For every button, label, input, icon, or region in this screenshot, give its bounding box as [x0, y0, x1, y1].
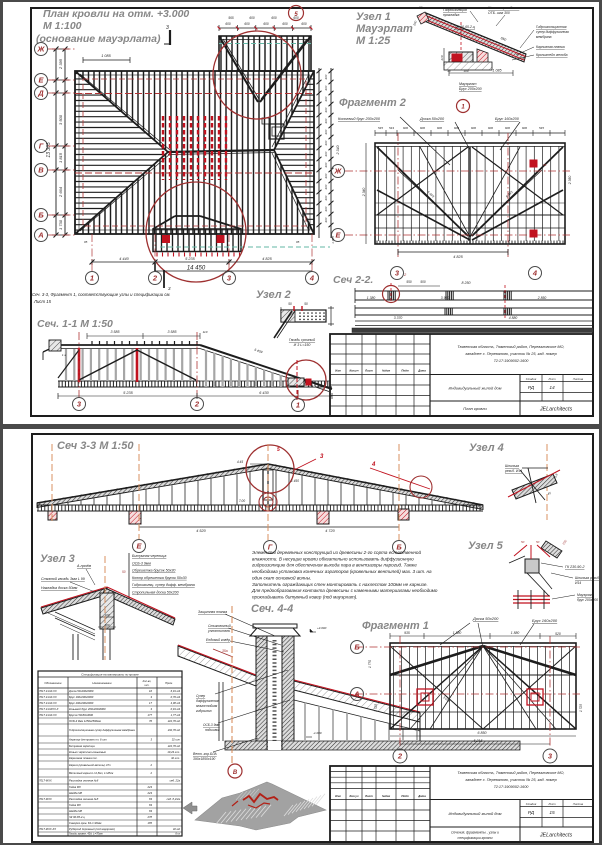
svg-text:Лист: Лист: [547, 377, 556, 381]
svg-text:Карниз (кровельной ветиль) х7т: Карниз (кровельной ветиль) х7т: [69, 763, 112, 767]
svg-text:1 450: 1 450: [291, 479, 299, 483]
svg-text:Шпилька резьбовая: Шпилька резьбовая: [488, 6, 519, 10]
svg-text:2: 2: [403, 272, 407, 277]
svg-text:западнее с. Перевалово, участо: западнее с. Перевалово, участок № 25, ка…: [464, 778, 557, 782]
svg-text:3: 3: [151, 738, 153, 742]
svg-text:35а: 35а: [222, 649, 228, 653]
svg-text:600: 600: [263, 22, 269, 26]
svg-text:Узел 3: Узел 3: [40, 553, 75, 565]
svg-text:45: 45: [547, 491, 552, 496]
svg-text:50: 50: [536, 540, 540, 544]
svg-text:20: 20: [446, 69, 451, 73]
svg-text:1 770: 1 770: [368, 660, 372, 668]
svg-text:Для предообразования контакта: Для предообразования контакта древесины …: [251, 588, 438, 593]
svg-text:14: 14: [549, 385, 555, 391]
svg-text:Кол-во,: Кол-во,: [143, 679, 152, 683]
svg-text:3 370: 3 370: [394, 316, 403, 320]
svg-text:Гвоздь срочный: Гвоздь срочный: [289, 338, 315, 342]
svg-text:Карнизная планка пог.: Карнизная планка пог.: [69, 756, 98, 760]
svg-text:600: 600: [324, 151, 328, 156]
svg-text:3: 3: [166, 25, 169, 31]
svg-text:1: 1: [461, 105, 465, 111]
svg-text:+4.000: +4.000: [317, 626, 327, 630]
svg-text:Шпилька: Шпилька: [505, 464, 519, 468]
svg-text:5 235: 5 235: [123, 391, 133, 395]
svg-text:7.00: 7.00: [239, 499, 245, 503]
svg-text:200: 200: [561, 539, 568, 546]
svg-text:1: 1: [296, 401, 300, 410]
svg-text:Шайба М8: Шайба М8: [69, 791, 82, 795]
svg-text:3: 3: [395, 269, 400, 278]
svg-text:ОСБ-3 9мм 1250х2500мм: ОСБ-3 9мм 1250х2500мм: [69, 719, 101, 723]
svg-text:Мауэрлат: Мауэрлат: [577, 593, 594, 597]
svg-text:4 520: 4 520: [196, 529, 206, 533]
svg-text:прокладка: прокладка: [443, 13, 460, 17]
svg-text:подшивка: подшивка: [205, 728, 220, 732]
svg-text:50: 50: [288, 302, 292, 306]
svg-text:210: 210: [440, 55, 444, 61]
svg-text:15: 15: [549, 810, 555, 816]
svg-text:Изм: Изм: [335, 794, 341, 798]
svg-text:2: 2: [194, 400, 200, 409]
svg-text:6 кг: 6 кг: [175, 832, 180, 836]
svg-text:600: 600: [324, 140, 328, 145]
svg-text:Тюменская область, Тюменский р: Тюменская область, Тюменский район, Пере…: [457, 345, 564, 349]
svg-text:себ. 22а: себ. 22а: [170, 779, 181, 783]
svg-text:Гидроизоляц. супер дифф. мембр: Гидроизоляц. супер дифф. мембрана: [132, 583, 195, 587]
svg-text:План кровли: План кровли: [463, 406, 487, 411]
svg-text:Доска 50х200: Доска 50х200: [419, 117, 445, 121]
svg-text:Сеч. 1-1 М 1:50: Сеч. 1-1 М 1:50: [37, 318, 113, 330]
svg-text:185: 185: [148, 821, 153, 825]
svg-text:95: 95: [84, 240, 88, 244]
svg-text:7017.3-КЖ-ХХ: 7017.3-КЖ-ХХ: [39, 701, 57, 705]
svg-text:3: 3: [77, 400, 82, 409]
svg-text:Гидроизоляционная: Гидроизоляционная: [536, 25, 567, 29]
svg-text:Брусок 50х50х3000: Брусок 50х50х3000: [69, 713, 94, 717]
svg-text:72:17:1909002:1600: 72:17:1909002:1600: [494, 785, 530, 789]
svg-text:50: 50: [279, 307, 283, 311]
svg-text:3 585: 3 585: [111, 330, 120, 334]
svg-text:3: 3: [151, 695, 153, 699]
svg-text:3: 3: [151, 707, 153, 711]
svg-text:4.45: 4.45: [237, 460, 243, 464]
svg-text:Битумная черепица: Битумная черепица: [69, 744, 95, 748]
svg-text:Фрагмент 1: Фрагмент 1: [362, 620, 429, 632]
svg-text:7017-ФХХ-ХХ: 7017-ФХХ-ХХ: [39, 827, 56, 831]
svg-text:Доска 50х200: Доска 50х200: [472, 616, 499, 621]
svg-text:1 815: 1 815: [58, 152, 63, 163]
svg-text:Дата: Дата: [417, 794, 426, 798]
svg-text:Изм: Изм: [335, 369, 341, 373]
svg-text:Индивидуальный жилой дом: Индивидуальный жилой дом: [449, 385, 502, 390]
svg-text:Узел 4: Узел 4: [469, 442, 504, 454]
svg-text:ЧК 90-65-2-ц: ЧК 90-65-2-ц: [455, 25, 475, 29]
svg-text:Накладка доска 50мм: Накладка доска 50мм: [41, 586, 78, 590]
svg-text:Ж: Ж: [37, 45, 46, 54]
svg-text:7017-МХХ: 7017-МХХ: [39, 779, 52, 783]
svg-text:Е: Е: [136, 542, 142, 551]
svg-text:1: 1: [90, 274, 94, 283]
svg-text:гидроизоляцию для обеспечения: гидроизоляцию для обеспечения выхода пар…: [252, 563, 417, 568]
svg-text:РД: РД: [528, 385, 535, 391]
svg-text:600: 600: [324, 118, 328, 123]
svg-text:Коньевой брус 200х200х6000: Коньевой брус 200х200х6000: [69, 707, 106, 711]
svg-text:935: 935: [404, 631, 410, 635]
svg-text:600: 600: [420, 126, 425, 130]
svg-text:650: 650: [500, 36, 507, 42]
svg-text:500: 500: [420, 280, 426, 284]
svg-text:600: 600: [324, 74, 328, 79]
svg-text:Брус 160х200х6000: Брус 160х200х6000: [69, 695, 94, 699]
svg-text:600: 600: [225, 22, 231, 26]
svg-text:50: 50: [304, 302, 308, 306]
svg-text:Гвоздь кровел. 43д. L=70мм: Гвоздь кровел. 43д. L=70мм: [69, 832, 103, 836]
svg-text:Кол.уч: Кол.уч: [349, 369, 358, 373]
svg-text:100: 100: [463, 69, 468, 73]
svg-text:7017.3-КЖ-ХХ: 7017.3-КЖ-ХХ: [39, 689, 57, 693]
svg-text:А: А: [353, 690, 359, 699]
svg-text:ОТБ. шаг 300: ОТБ. шаг 300: [488, 11, 510, 15]
svg-text:М 1:25: М 1:25: [356, 35, 391, 47]
svg-text:План кровли на отм. +3.000: План кровли на отм. +3.000: [43, 8, 189, 20]
svg-text:177: 177: [148, 713, 153, 717]
svg-text:10,23 шт.: 10,23 шт.: [167, 750, 180, 754]
svg-text:7017-МХХ: 7017-МХХ: [39, 797, 52, 801]
svg-text:Брус 200х200х6000: Брус 200х200х6000: [69, 701, 94, 705]
svg-text:Подп: Подп: [401, 369, 408, 373]
svg-text:600: 600: [488, 126, 493, 130]
svg-text:4,08 м3: 4,08 м3: [171, 701, 181, 705]
svg-text:6 430: 6 430: [259, 391, 269, 395]
svg-text:550: 550: [406, 280, 412, 284]
svg-text:диффузионная: диффузионная: [196, 699, 219, 703]
svg-text:ОСБ-3 9мм: ОСБ-3 9мм: [132, 561, 151, 565]
svg-text:ЧК 90-65-2-ц: ЧК 90-65-2-ц: [69, 815, 85, 819]
svg-text:Мауэрлат: Мауэрлат: [459, 82, 476, 86]
svg-text:Лист: Лист: [547, 802, 556, 806]
svg-text:4 720: 4 720: [325, 529, 335, 533]
svg-text:565: 565: [228, 16, 234, 20]
svg-text:5 235: 5 235: [185, 257, 195, 261]
svg-text:Стадия: Стадия: [526, 802, 537, 806]
svg-text:Тюменская область, Тюменский р: Тюменская область, Тюменский район, Пере…: [457, 771, 564, 775]
svg-text:14 450: 14 450: [187, 266, 206, 272]
svg-text:Листов: Листов: [572, 802, 584, 806]
svg-text:Спецификация на материалы по к: Спецификация на материалы по кровле: [81, 673, 139, 677]
svg-text:223: 223: [147, 791, 153, 795]
svg-text:РД: РД: [528, 810, 535, 816]
svg-text:4 825: 4 825: [262, 257, 272, 261]
svg-text:ГК 230-90-2: ГК 230-90-2: [565, 565, 584, 569]
svg-text:600: 600: [522, 126, 527, 130]
svg-text:32 м2: 32 м2: [173, 827, 181, 831]
svg-text:М 1:100: М 1:100: [43, 20, 82, 32]
svg-text:4: 4: [371, 462, 376, 468]
svg-text:2 340: 2 340: [362, 188, 366, 198]
svg-text:3: 3: [320, 454, 324, 460]
svg-text:1 725: 1 725: [374, 704, 378, 712]
svg-text:5 215: 5 215: [474, 739, 483, 743]
svg-text:16: 16: [149, 689, 152, 693]
svg-text:Сеч. 3-3, Фрагмент 1, соответс: Сеч. 3-3, Фрагмент 1, соответствующие уз…: [32, 292, 171, 297]
svg-text:3: 3: [548, 752, 553, 761]
svg-text:Б: Б: [354, 643, 360, 652]
svg-text:600: 600: [271, 16, 277, 20]
svg-text:1 730: 1 730: [58, 219, 63, 230]
svg-text:32 шт: 32 шт: [172, 738, 181, 742]
svg-text:Стропильная доска 50х200: Стропильная доска 50х200: [132, 591, 179, 595]
svg-text:Подп: Подп: [401, 794, 408, 798]
svg-text:5 459: 5 459: [254, 348, 263, 354]
svg-text:7017.3-КЖ-ХХ: 7017.3-КЖ-ХХ: [39, 713, 57, 717]
svg-text:Кол.уч: Кол.уч: [349, 794, 358, 798]
svg-text:600: 600: [324, 206, 328, 211]
svg-text:232,76 м2: 232,76 м2: [167, 728, 181, 732]
svg-text:600: 600: [505, 126, 510, 130]
svg-text:Раскладка оконная №8: Раскладка оконная №8: [69, 779, 99, 783]
svg-text:прокладывать битумный ковер (п: прокладывать битумный ковер (под мауэрла…: [252, 593, 358, 599]
svg-text:600: 600: [324, 85, 328, 90]
svg-text:2: 2: [397, 752, 403, 761]
svg-text:Гидроизоляционная супер диффуз: Гидроизоляционная супер диффузионная мем…: [69, 728, 135, 732]
svg-text:А-проём: А-проём: [76, 564, 92, 568]
svg-text:себ. 8,2/2а: себ. 8,2/2а: [167, 797, 181, 801]
svg-text:Мауэрлат: Мауэрлат: [356, 23, 413, 35]
svg-text:3 980: 3 980: [441, 296, 450, 300]
svg-text:Ветиляый карниз L=2,8мп, L=28с: Ветиляый карниз L=2,8мп, L=28см: [69, 771, 113, 775]
svg-text:Защитная планка: Защитная планка: [198, 610, 227, 614]
svg-text:600: 600: [437, 126, 442, 130]
svg-text:5.8: 5.8: [553, 473, 559, 479]
svg-text:Фрагмент 2: Фрагмент 2: [339, 97, 406, 109]
svg-text:мембрана: мембрана: [536, 35, 552, 39]
svg-text:600: 600: [324, 96, 328, 101]
svg-text:Карнизная планка: Карнизная планка: [536, 45, 565, 49]
svg-text:Гайка М8: Гайка М8: [69, 803, 81, 807]
svg-text:Битумная черепица: Битумная черепица: [132, 554, 166, 558]
svg-text:2 350: 2 350: [568, 176, 572, 186]
svg-text:И 3 L=150: И 3 L=150: [294, 343, 311, 347]
svg-text:Прим.: Прим.: [165, 681, 173, 685]
svg-text:Заполнитель ограждающих стен м: Заполнитель ограждающих стен монтировать…: [252, 582, 428, 587]
svg-text:4 440: 4 440: [119, 257, 129, 261]
svg-text:Брус 160х200: Брус 160х200: [495, 117, 520, 121]
svg-text:Коньки черепично-коньковые: Коньки черепично-коньковые: [69, 750, 106, 754]
svg-text:600: 600: [282, 22, 288, 26]
svg-text:Брус 160х200: Брус 160х200: [532, 618, 558, 623]
svg-text:один скат основной волны.: один скат основной волны.: [252, 574, 311, 580]
svg-text:А: А: [37, 231, 43, 240]
svg-text:JELarchitects: JELarchitects: [539, 833, 573, 839]
svg-text:Листов: Листов: [572, 377, 584, 381]
svg-text:1,77 м3: 1,77 м3: [171, 713, 181, 717]
svg-text:600: 600: [324, 195, 328, 200]
svg-text:Гидроизоляция: Гидроизоляция: [443, 8, 467, 12]
svg-text:50: 50: [419, 6, 423, 10]
svg-text:Стяжной гвоздь 3мм L 99: Стяжной гвоздь 3мм L 99: [41, 577, 85, 581]
svg-text:600: 600: [301, 22, 307, 26]
svg-text:Узел 2: Узел 2: [256, 289, 291, 301]
svg-text:шт.: шт.: [144, 684, 149, 687]
svg-text:Лист: Лист: [364, 794, 373, 798]
svg-text:Лист: Лист: [364, 369, 373, 373]
svg-text:223: 223: [147, 785, 153, 789]
svg-text:0,91 м3: 0,91 м3: [171, 707, 181, 711]
svg-text:Стадия: Стадия: [526, 377, 537, 381]
svg-text:545: 545: [539, 126, 544, 130]
svg-text:2 340: 2 340: [336, 146, 340, 156]
svg-text:Обозначение: Обозначение: [44, 681, 62, 685]
svg-text:Брус 200х200: Брус 200х200: [459, 87, 482, 91]
svg-text:Сечения, фрагменты , узлы и: Сечения, фрагменты , узлы и: [451, 831, 499, 835]
svg-text:83: 83: [149, 797, 152, 801]
svg-text:600: 600: [324, 162, 328, 167]
svg-text:600: 600: [324, 107, 328, 112]
svg-text:7017.3-КЖ-ХХ: 7017.3-КЖ-ХХ: [39, 695, 57, 699]
svg-text:4: 4: [309, 274, 315, 283]
svg-text:543: 543: [389, 126, 394, 130]
svg-text:Лист 15: Лист 15: [33, 299, 52, 304]
svg-text:83: 83: [149, 809, 152, 813]
svg-text:Е: Е: [38, 76, 44, 85]
svg-text:1 725: 1 725: [579, 704, 583, 712]
svg-text:3: 3: [168, 286, 171, 291]
svg-text:Раскладка оконная №8: Раскладка оконная №8: [69, 797, 99, 801]
svg-text:Супер: Супер: [196, 694, 205, 698]
svg-text:Шпилька резьб.: Шпилька резьб.: [575, 576, 599, 580]
svg-text:Индивидуальный жилой дом: Индивидуальный жилой дом: [449, 811, 502, 816]
svg-text:(основание мауэрлата): (основание мауэрлата): [36, 33, 161, 45]
svg-text:Аэратор для кровли пл. 6 шт: Аэратор для кровли пл. 6 шт: [68, 738, 108, 742]
svg-text:Наименование: Наименование: [92, 681, 112, 685]
svg-text:1 880: 1 880: [511, 631, 520, 635]
svg-text:50: 50: [521, 540, 525, 544]
svg-text:5: 5: [277, 447, 280, 453]
svg-text:1 085: 1 085: [331, 236, 335, 244]
svg-text:3: 3: [227, 274, 232, 283]
svg-text:600: 600: [471, 126, 476, 130]
svg-text:Б: Б: [38, 211, 44, 220]
svg-text:Кронштейн желоба: Кронштейн желоба: [536, 53, 568, 57]
svg-text:необходима установка конечных: необходима установка конечных аэраторов …: [252, 568, 432, 574]
svg-text:545: 545: [378, 126, 383, 130]
svg-text:В: В: [233, 770, 238, 776]
svg-text:83: 83: [149, 803, 152, 807]
svg-text:Узел 1: Узел 1: [356, 11, 391, 23]
svg-text:222,76 м2: 222,76 м2: [167, 719, 181, 723]
svg-text:гидроизол.: гидроизол.: [196, 709, 212, 713]
svg-text:Контр обрешетка брусок 50х30: Контр обрешетка брусок 50х30: [132, 576, 187, 580]
svg-text:Доска 50х200х6000: Доска 50х200х6000: [68, 689, 94, 693]
svg-text:В: В: [38, 166, 44, 175]
svg-text:0,76 м3: 0,76 м3: [171, 695, 181, 699]
svg-text:32 шт.: 32 шт.: [171, 756, 180, 760]
svg-text:600: 600: [324, 129, 328, 134]
svg-text:Стыковочный: Стыковочный: [208, 624, 231, 628]
svg-text:Ендовый ковёр: Ендовый ковёр: [206, 638, 230, 642]
svg-text:Обрешетка брусок 50х30: Обрешетка брусок 50х30: [132, 569, 175, 573]
svg-text:И14: И14: [575, 581, 581, 585]
svg-text:2 395: 2 395: [58, 58, 63, 70]
svg-text:брус 200х200: брус 200х200: [577, 598, 598, 602]
svg-text:72:17:1909002:1600: 72:17:1909002:1600: [494, 359, 530, 363]
svg-text:Сеч. 4-4: Сеч. 4-4: [251, 603, 293, 615]
svg-text:Е: Е: [335, 231, 341, 240]
svg-text:№док: №док: [382, 369, 391, 373]
svg-text:600: 600: [324, 173, 328, 178]
svg-text:-1.000: -1.000: [313, 731, 322, 735]
svg-text:Узел 5: Узел 5: [468, 540, 504, 552]
svg-text:Г: Г: [39, 142, 44, 151]
svg-text:278: 278: [147, 815, 153, 819]
svg-text:Шайба М8: Шайба М8: [69, 809, 82, 813]
svg-text:2 850: 2 850: [537, 296, 547, 300]
svg-text:8 250: 8 250: [462, 281, 471, 285]
svg-text:западнее с. Перевалово, участо: западнее с. Перевалово, участок № 25, ка…: [464, 352, 557, 356]
svg-text:4: 4: [532, 269, 538, 278]
svg-text:Элементы деревянных конструкци: Элементы деревянных конструкций из древе…: [252, 549, 421, 555]
svg-text:2: 2: [152, 274, 158, 283]
svg-text:Гайка М8: Гайка М8: [69, 785, 81, 789]
svg-text:№док: №док: [382, 794, 391, 798]
svg-text:2: 2: [150, 771, 153, 775]
svg-text:1 а: 1 а: [62, 353, 67, 357]
svg-text:1 880: 1 880: [453, 631, 462, 635]
svg-text:резьб. И14: резьб. И14: [504, 469, 522, 473]
svg-text:222,76 м2: 222,76 м2: [167, 744, 181, 748]
svg-text:50: 50: [122, 570, 126, 574]
svg-text:2 664: 2 664: [58, 186, 63, 198]
svg-text:Сеч 3-3 М 1:50: Сеч 3-3 М 1:50: [57, 440, 134, 452]
svg-text:Д: Д: [37, 89, 44, 98]
svg-text:600: 600: [403, 126, 408, 130]
svg-text:Дата: Дата: [417, 369, 426, 373]
svg-text:Сеч 2-2.: Сеч 2-2.: [333, 274, 373, 286]
svg-text:JELarchitects: JELarchitects: [539, 407, 573, 413]
svg-text:Коньевый брус 200х200: Коньевый брус 200х200: [338, 117, 381, 121]
svg-text:1 380: 1 380: [367, 296, 376, 300]
svg-text:4 880: 4 880: [509, 316, 518, 320]
svg-text:110: 110: [203, 330, 208, 334]
svg-text:влажности. В несущие кровли об: влажности. В несущие кровли обязательно …: [252, 556, 414, 561]
svg-text:Вент. кор.БЛА: Вент. кор.БЛА: [193, 752, 217, 756]
svg-text:1 085: 1 085: [101, 54, 111, 58]
svg-text:6,91 м3: 6,91 м3: [171, 689, 181, 693]
svg-text:Рубероид дорожный (под мауэрла: Рубероид дорожный (под мауэрлат): [69, 827, 115, 831]
svg-text:спецификации кровли: спецификации кровли: [458, 836, 493, 840]
svg-text:17: 17: [149, 701, 152, 705]
svg-text:95: 95: [543, 163, 547, 167]
svg-text:6 850: 6 850: [478, 731, 487, 735]
svg-text:390х1850х190: 390х1850х190: [193, 757, 215, 761]
svg-text:ОСБ-3 9мм: ОСБ-3 9мм: [203, 723, 221, 727]
svg-text:Саморез кров. 63 L=30мм: Саморез кров. 63 L=30мм: [69, 821, 102, 825]
svg-text:600: 600: [244, 22, 250, 26]
svg-text:уплотнитель: уплотнитель: [207, 629, 230, 633]
svg-text:600: 600: [249, 16, 255, 20]
svg-text:600: 600: [324, 217, 328, 222]
svg-text:влагостойкая: влагостойкая: [196, 704, 217, 708]
svg-text:супер диффузионная: супер диффузионная: [536, 30, 569, 34]
svg-text:76: 76: [149, 719, 152, 723]
svg-text:600: 600: [324, 184, 328, 189]
svg-text:520: 520: [555, 632, 561, 636]
svg-text:4 825: 4 825: [453, 255, 463, 259]
svg-text:1 085: 1 085: [493, 69, 502, 73]
svg-text:3 585: 3 585: [168, 330, 177, 334]
svg-text:95: 95: [296, 240, 300, 244]
